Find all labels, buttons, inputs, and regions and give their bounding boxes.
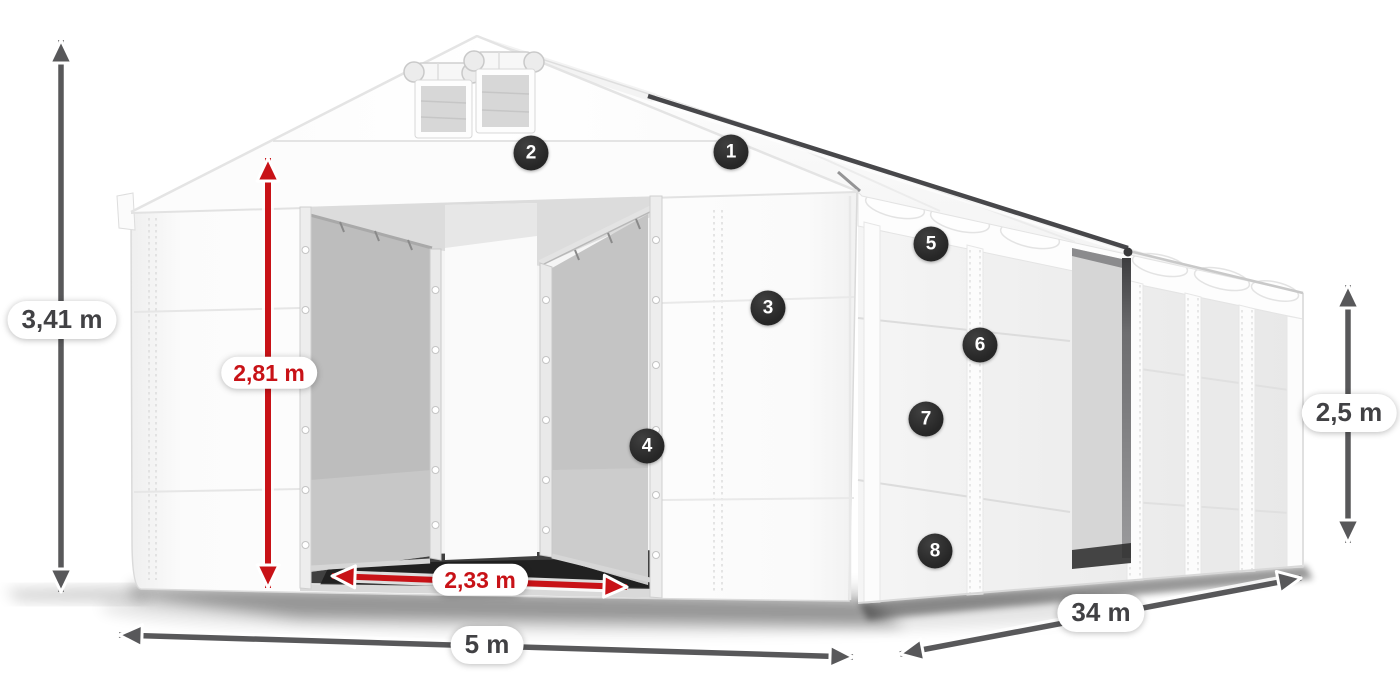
- dimension-label-side-wall-height: 2,5 m: [1302, 394, 1397, 432]
- marker-3: 3: [751, 291, 786, 326]
- dimension-label-total-height: 3,41 m: [8, 301, 117, 339]
- dimension-label-entrance-width: 2,33 m: [432, 564, 528, 596]
- open-gate-gap: [445, 203, 537, 560]
- gable-vent-left: [404, 62, 482, 138]
- marker-5: 5: [914, 227, 949, 262]
- dimension-label-entrance-height: 2,81 m: [221, 357, 317, 389]
- marker-1: 1: [714, 135, 749, 170]
- marker-8: 8: [918, 534, 953, 569]
- marker-6: 6: [963, 328, 998, 363]
- dimension-label-width: 5 m: [451, 626, 524, 664]
- tent-illustration: [0, 0, 1400, 700]
- dimension-label-length: 34 m: [1057, 594, 1144, 632]
- marker-4: 4: [630, 429, 665, 464]
- marker-7: 7: [909, 402, 944, 437]
- front-entrance: [300, 196, 662, 598]
- product-dimension-diagram: 3,41 m 2,81 m 2,33 m 5 m 34 m 2,5 m 1 2 …: [0, 0, 1400, 700]
- side-gate-opening: [1072, 248, 1131, 569]
- marker-2: 2: [514, 136, 549, 171]
- gable-vent-right: [464, 51, 544, 133]
